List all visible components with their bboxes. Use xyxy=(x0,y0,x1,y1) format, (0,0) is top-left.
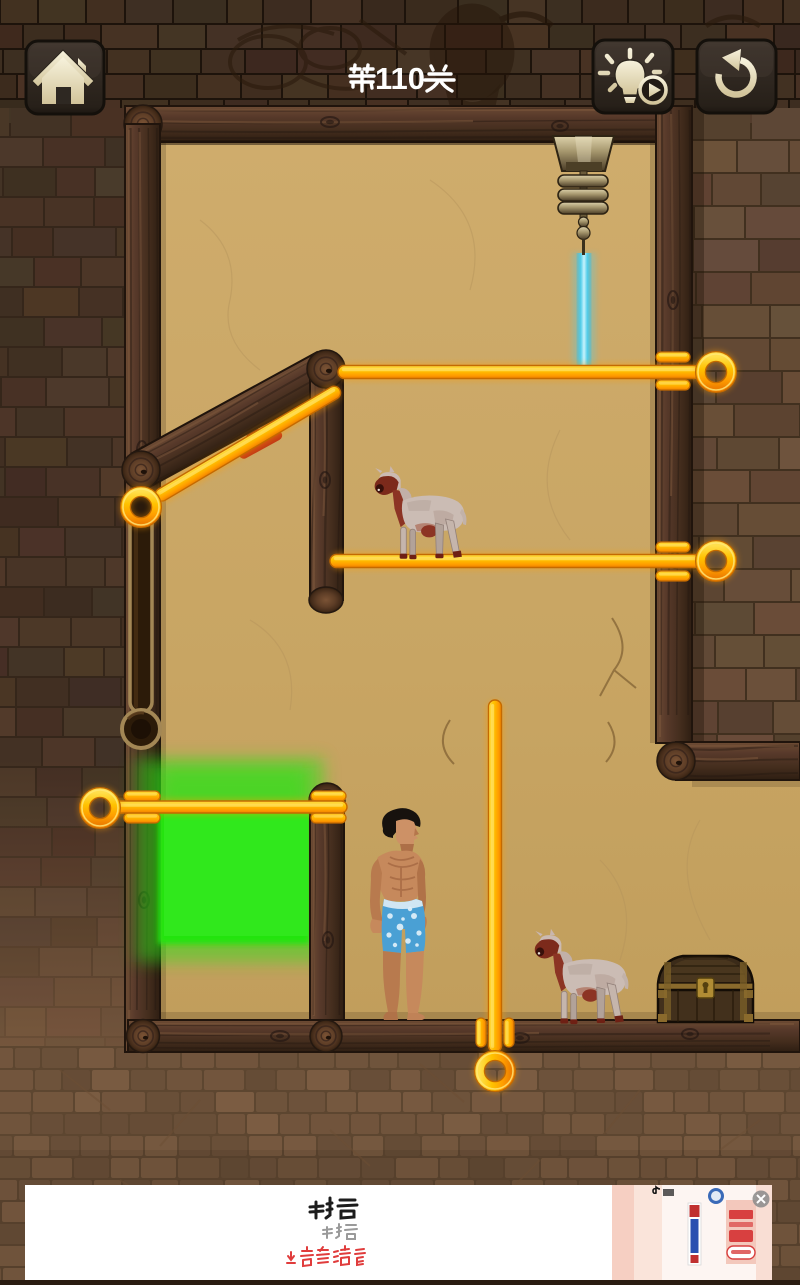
svg-text:110: 110 xyxy=(375,61,425,96)
